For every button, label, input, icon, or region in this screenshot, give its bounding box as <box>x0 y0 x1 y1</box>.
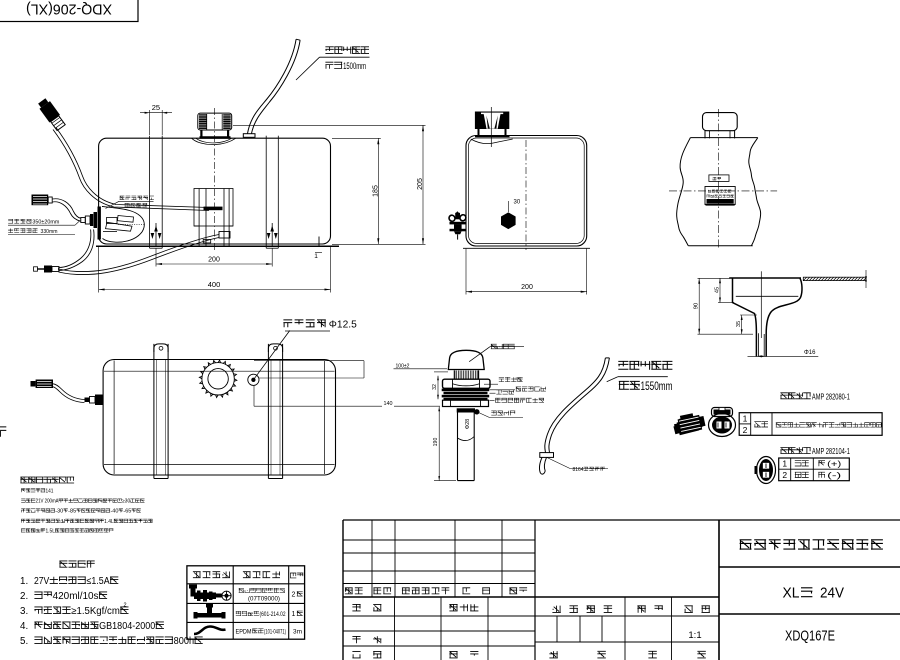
svg-text:≥30: ≥30 <box>122 499 130 505</box>
svg-text:Φ28: Φ28 <box>465 419 471 430</box>
svg-text:XL: XL <box>783 586 800 602</box>
svg-text:141: 141 <box>45 488 53 494</box>
svg-text:30: 30 <box>514 200 521 206</box>
svg-text:400: 400 <box>208 280 221 289</box>
svg-text:XDQ167E: XDQ167E <box>785 629 835 645</box>
svg-text:-40: -40 <box>110 509 118 515</box>
svg-text:1: 1 <box>292 611 296 618</box>
svg-text:185: 185 <box>373 185 380 197</box>
svg-text:200: 200 <box>521 284 533 291</box>
svg-text:1.: 1. <box>20 576 28 587</box>
svg-text:100±2: 100±2 <box>396 363 410 369</box>
svg-text:-65: -65 <box>123 509 131 515</box>
svg-text:2: 2 <box>124 603 127 609</box>
svg-text:21V 200mA: 21V 200mA <box>36 499 59 505</box>
svg-text:24V: 24V <box>820 586 844 602</box>
svg-text:1550mm: 1550mm <box>641 381 673 393</box>
svg-text:330mm: 330mm <box>41 229 58 235</box>
svg-text:XDQ-206(XL): XDQ-206(XL) <box>26 1 112 17</box>
svg-text:350±20mm: 350±20mm <box>32 220 59 226</box>
svg-text:35: 35 <box>736 321 742 327</box>
svg-text:≥1.5Kgf/cm: ≥1.5Kgf/cm <box>71 606 120 617</box>
svg-text:1:1: 1:1 <box>688 630 701 641</box>
svg-text:8164: 8164 <box>573 467 584 473</box>
svg-text:(+): (+) <box>827 460 841 469</box>
svg-text:Φ12.5: Φ12.5 <box>329 319 357 331</box>
svg-text:(601-214.02: (601-214.02 <box>260 611 286 618</box>
svg-text:AMP 282104-1: AMP 282104-1 <box>812 446 850 456</box>
svg-text:2: 2 <box>743 425 748 435</box>
svg-text:-85: -85 <box>68 509 76 515</box>
svg-text:140: 140 <box>384 401 393 407</box>
svg-text:1: 1 <box>782 459 787 469</box>
svg-text:1500mm: 1500mm <box>343 61 366 72</box>
svg-text:190: 190 <box>433 438 439 447</box>
svg-text:27V: 27V <box>34 576 50 587</box>
svg-text:2: 2 <box>782 470 787 480</box>
svg-text:1.5L: 1.5L <box>45 528 55 534</box>
svg-text:800h: 800h <box>174 636 194 647</box>
svg-text:(07T09000): (07T09000) <box>248 596 280 603</box>
svg-text:90: 90 <box>694 303 700 309</box>
svg-text:(-): (-) <box>827 471 842 480</box>
svg-text:GB1804-2000: GB1804-2000 <box>99 621 156 632</box>
svg-text:Φ16: Φ16 <box>804 350 816 356</box>
svg-text:420ml/10s: 420ml/10s <box>53 591 99 602</box>
svg-text:1.4L: 1.4L <box>104 519 114 525</box>
svg-text:AMP 282080-1: AMP 282080-1 <box>812 391 850 401</box>
svg-text:32: 32 <box>432 384 438 390</box>
svg-text:(101-04071): (101-04071) <box>264 628 286 635</box>
svg-text:2: 2 <box>292 592 296 599</box>
svg-text:3.: 3. <box>20 606 28 617</box>
svg-text:1: 1 <box>743 414 748 424</box>
svg-text:4.: 4. <box>20 621 28 632</box>
svg-text:45: 45 <box>715 287 721 293</box>
svg-text:≤1.5A: ≤1.5A <box>87 576 111 587</box>
svg-text:1: 1 <box>314 253 318 260</box>
svg-text:-30: -30 <box>55 509 63 515</box>
svg-text:25: 25 <box>152 103 160 112</box>
svg-text:EPDM: EPDM <box>236 628 252 635</box>
svg-text:205: 205 <box>417 178 424 190</box>
svg-text:200: 200 <box>208 257 220 264</box>
svg-text:2.: 2. <box>20 591 28 602</box>
svg-text:3m: 3m <box>293 628 302 635</box>
svg-text:5.: 5. <box>20 636 28 647</box>
